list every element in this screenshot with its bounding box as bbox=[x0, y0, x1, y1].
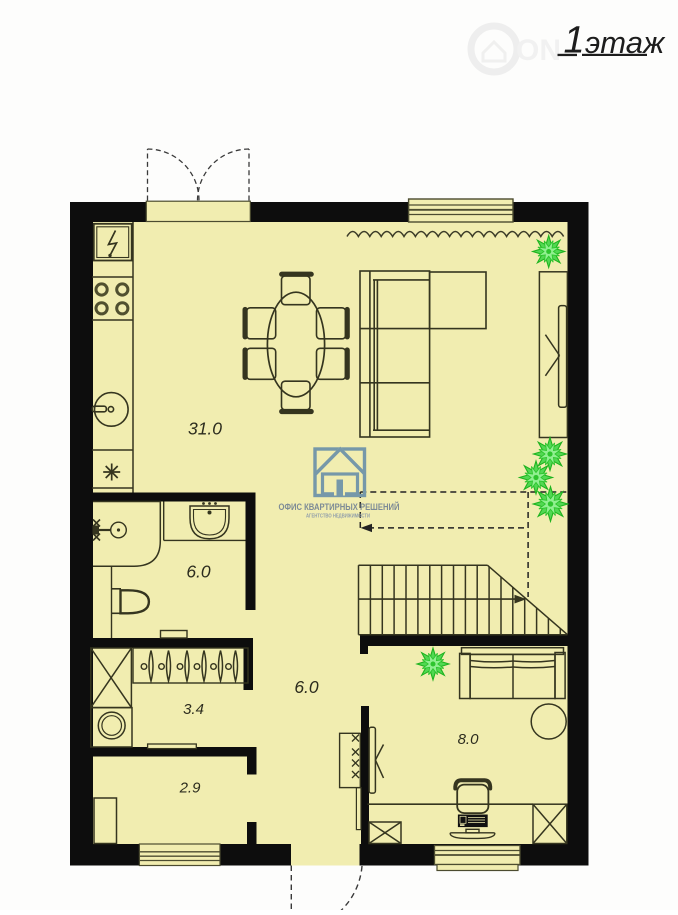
svg-text:6.0: 6.0 bbox=[186, 562, 211, 582]
svg-text:31.0: 31.0 bbox=[188, 419, 222, 439]
svg-text:ОФИС КВАРТИРНЫХ РЕШЕНИЙ: ОФИС КВАРТИРНЫХ РЕШЕНИЙ bbox=[279, 501, 400, 512]
svg-text:6.0: 6.0 bbox=[294, 677, 319, 697]
svg-text:ON: ON bbox=[516, 34, 561, 67]
svg-text:3.4: 3.4 bbox=[183, 701, 204, 718]
svg-text:8.0: 8.0 bbox=[458, 731, 480, 748]
svg-text:АГЕНТСТВО НЕДВИЖИМОСТИ: АГЕНТСТВО НЕДВИЖИМОСТИ bbox=[306, 514, 370, 520]
svg-text:2.9: 2.9 bbox=[179, 780, 202, 797]
